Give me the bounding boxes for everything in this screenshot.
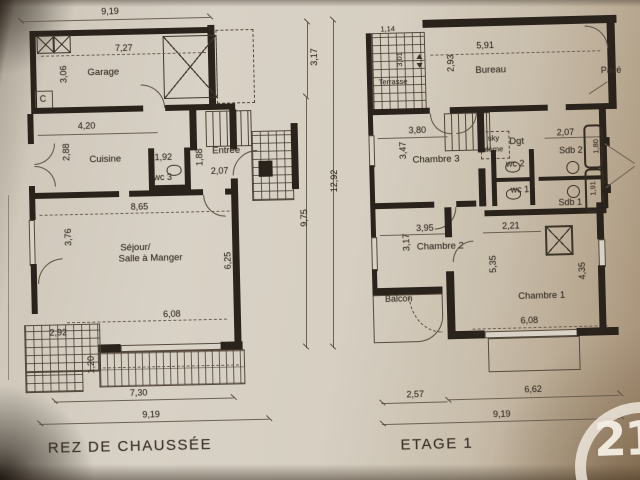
room-label-sejour2: Salle à Manger — [119, 252, 183, 264]
dimension-line — [380, 233, 452, 236]
door-arc — [585, 25, 609, 49]
room-label-garage: Garage — [87, 67, 119, 79]
window-grille — [53, 35, 71, 53]
dimension-line — [377, 136, 447, 139]
dim-label: 9,19 — [142, 409, 160, 419]
dim-label: 5,35 — [488, 255, 498, 273]
room-label-wc2: wc 2 — [506, 158, 525, 168]
dim-label: 1,88 — [194, 148, 204, 166]
wall — [477, 112, 485, 152]
plan-title-ground-floor: REZ DE CHAUSSÉE — [48, 436, 213, 457]
entry-step — [258, 161, 272, 177]
dim-label: 6,08 — [520, 315, 538, 325]
wall — [189, 110, 197, 150]
sink-icon — [566, 161, 579, 174]
door-arc — [141, 84, 166, 109]
dim-label: 1,14 — [380, 24, 395, 33]
room-label-terrasse: Terrasse — [379, 77, 408, 87]
dimension-line — [67, 319, 227, 324]
wall — [31, 264, 38, 314]
wall — [456, 201, 476, 208]
room-label-bureau: Bureau — [475, 64, 506, 76]
wall — [444, 207, 452, 237]
door-arc — [34, 143, 55, 164]
window — [371, 237, 378, 271]
dimension-line — [447, 395, 619, 401]
wall — [368, 108, 430, 116]
dimension-line — [38, 132, 158, 136]
dimension-line — [381, 401, 447, 404]
dim-label: 3,95 — [416, 223, 434, 233]
wall — [35, 191, 119, 199]
wall — [453, 330, 485, 339]
wall — [577, 327, 619, 336]
dim-label: 8,65 — [131, 201, 149, 211]
dim-label: 2,07 — [211, 166, 229, 176]
room-label-sdb1: Sdb 1 — [558, 197, 582, 208]
dim-label: 6,25 — [222, 252, 232, 270]
wall — [31, 105, 143, 114]
dim-label: 3,17 — [401, 233, 411, 251]
annotation-pave: Pavé — [601, 65, 622, 76]
window — [598, 239, 606, 267]
wall — [492, 177, 535, 182]
annotation-line — [589, 81, 608, 94]
dim-label: 4,20 — [78, 121, 96, 131]
sky-dome-label: sky — [488, 133, 499, 142]
wall — [29, 200, 35, 220]
dim-label: 1,80 — [591, 139, 600, 154]
dim-label: 3,76 — [63, 228, 73, 246]
wall — [229, 109, 237, 149]
arrow-up-icon — [416, 54, 422, 59]
wall — [566, 103, 617, 110]
room-label-wc1: wc 1 — [510, 184, 529, 194]
wall — [184, 147, 191, 189]
door-arc — [34, 165, 55, 186]
wall — [370, 202, 434, 210]
shower-box — [545, 225, 574, 256]
dim-label: 1,91 — [588, 181, 597, 196]
dim-label: 5,91 — [476, 40, 494, 50]
dim-label: 2,57 — [406, 389, 424, 399]
dimension-line — [20, 17, 210, 22]
dimension-line — [8, 195, 9, 380]
room-label-sdb2: Sdb 2 — [559, 145, 583, 156]
terrasse-paving — [371, 32, 427, 111]
room-label-chambre3: Chambre 3 — [412, 153, 459, 165]
dim-label: 9,19 — [101, 6, 119, 16]
dim-label: 2,93 — [445, 54, 455, 72]
dim-label: 7,30 — [130, 387, 148, 397]
dim-label: 2,07 — [557, 127, 575, 137]
dim-label: 4,35 — [577, 262, 587, 280]
wall — [596, 207, 604, 239]
wall — [446, 271, 456, 339]
dim-label: 9,75 — [299, 209, 309, 227]
room-label-sejour: Séjour/ — [120, 242, 150, 254]
wall — [598, 265, 607, 335]
door-arc — [38, 258, 64, 284]
room-label-dgt: Dgt — [509, 136, 524, 147]
dim-label: 2,92 — [49, 327, 67, 337]
dimension-line — [39, 419, 269, 425]
wall — [478, 168, 486, 206]
dim-label: 3,47 — [398, 142, 408, 160]
dim-label: 2,21 — [502, 220, 520, 230]
dim-label: 3,01 — [395, 52, 404, 67]
dimension-line — [307, 22, 308, 97]
dimension-line — [430, 50, 600, 55]
window — [29, 220, 36, 266]
dim-label: 3,06 — [58, 65, 68, 83]
dim-label: 7,27 — [115, 43, 133, 53]
terrace-paving — [99, 349, 246, 387]
plan-first-floor: 1,14 3,01 Terrasse 5,91 2,93 Bureau Pavé… — [349, 0, 640, 469]
wall — [225, 188, 238, 194]
porch — [488, 336, 581, 372]
century21-logo-number: 21 — [593, 411, 640, 468]
wall — [370, 209, 376, 237]
dimension-line — [483, 231, 541, 234]
dashed-extension — [215, 29, 255, 104]
wall — [129, 189, 203, 197]
dim-label: 1,92 — [154, 152, 172, 162]
terrace-paving — [25, 370, 83, 393]
wall — [606, 15, 616, 103]
room-label-chambre1: Chambre 1 — [518, 290, 565, 302]
room-label-cuisine: Cuisine — [89, 153, 121, 165]
wall — [27, 114, 34, 144]
dim-label: 6,08 — [163, 309, 181, 319]
door-arc — [203, 195, 225, 217]
wall — [291, 123, 299, 189]
dim-label: 1,20 — [86, 356, 96, 374]
dim-label: 2,88 — [61, 143, 71, 161]
floorplan-photo: 9,19 7,27 3,06 Garage C 4,20 2,88 Cuisin… — [0, 0, 640, 480]
plan-ground-floor: 9,19 7,27 3,06 Garage C 4,20 2,88 Cuisin… — [5, 0, 327, 468]
dim-label: 3,17 — [309, 48, 319, 66]
dim-label: 9,19 — [493, 409, 511, 419]
bay-line — [606, 166, 636, 188]
wall — [368, 109, 374, 135]
window — [368, 135, 375, 167]
dim-label: 3,80 — [408, 125, 426, 135]
room-label-balcon: Balcon — [385, 293, 413, 304]
garage-skylight — [163, 35, 218, 99]
wall — [231, 195, 240, 290]
dimension-line — [54, 398, 234, 403]
closet-label: C — [40, 94, 47, 104]
room-label-wc3: wc 3 — [153, 172, 172, 182]
dim-label: 12,92 — [329, 170, 339, 193]
plan-title-first-floor: ETAGE 1 — [400, 435, 473, 454]
dim-label: 6,62 — [524, 384, 542, 394]
arrow-down-icon — [417, 63, 423, 68]
bay-line — [604, 143, 635, 164]
